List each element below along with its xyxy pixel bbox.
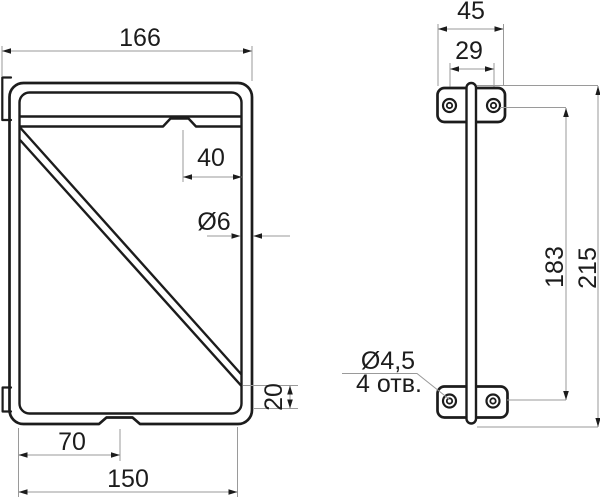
dim-dia6-label: Ø6 <box>197 208 230 236</box>
outer-wire-frame <box>10 83 253 424</box>
dim-150-label: 150 <box>107 465 149 493</box>
dim-40-label: 40 <box>197 144 225 172</box>
dim-166-label: 166 <box>119 24 161 52</box>
technical-drawing: 166 40 Ø6 20 70 150 <box>0 0 600 499</box>
dim-183-label: 183 <box>541 246 569 288</box>
dim-45-label: 45 <box>457 0 485 25</box>
dim-215-label: 215 <box>574 247 600 289</box>
hole-count-label: 4 отв. <box>356 370 422 398</box>
dim-70-label: 70 <box>58 428 86 456</box>
wire-bar-edge-view <box>467 83 477 424</box>
front-view <box>2 78 252 425</box>
dim-29-label: 29 <box>455 37 483 65</box>
dim-20-label: 20 <box>260 383 288 411</box>
